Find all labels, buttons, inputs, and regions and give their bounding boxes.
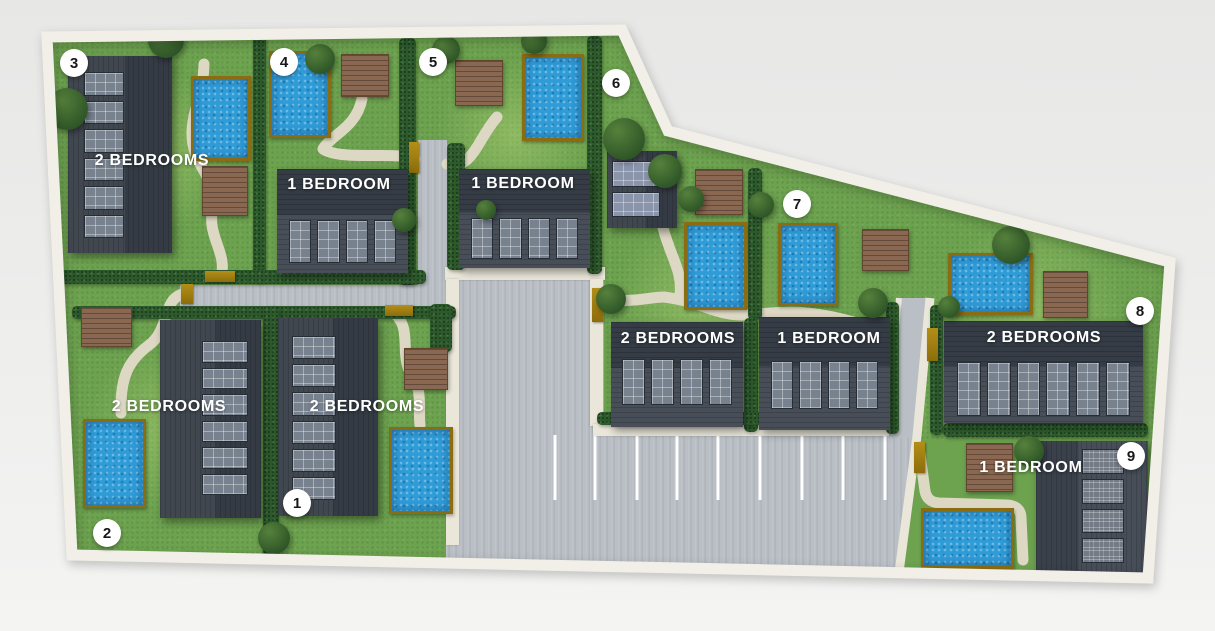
tree	[678, 186, 704, 212]
skylight	[84, 72, 124, 96]
skylight	[84, 215, 124, 239]
villa-1-building[interactable]	[278, 318, 378, 516]
tree	[148, 22, 184, 58]
tree	[392, 208, 416, 232]
villa-6-badge[interactable]: 6	[602, 69, 630, 97]
skylight	[528, 218, 550, 259]
villa-2-label: 2 BEDROOMS	[112, 398, 227, 416]
tree	[648, 154, 682, 188]
villa-3-badge[interactable]: 3	[60, 49, 88, 77]
skylight	[202, 341, 248, 363]
skylight	[346, 220, 368, 263]
skylight	[799, 361, 821, 409]
villa-5-label: 1 BEDROOM	[471, 175, 574, 193]
villa-5-skylights	[471, 218, 578, 259]
skylight	[957, 362, 981, 416]
gate	[205, 271, 235, 282]
skylight	[1082, 509, 1124, 534]
skylight	[292, 364, 336, 387]
skylight	[612, 192, 660, 218]
gate	[385, 305, 413, 316]
tree	[46, 88, 88, 130]
villa-9-badge[interactable]: 9	[1117, 442, 1145, 470]
villa-8-deck	[1043, 271, 1088, 318]
tree	[858, 288, 888, 318]
skylight	[202, 368, 248, 390]
villa-3-deck	[202, 166, 248, 216]
villa-5-deck	[455, 60, 503, 106]
villa-7-label: 1 BEDROOM	[777, 330, 880, 348]
skylight	[1106, 362, 1130, 416]
villa-6-pool	[684, 222, 747, 310]
tree	[521, 28, 547, 54]
skylight	[292, 449, 336, 472]
villa-4-badge[interactable]: 4	[270, 48, 298, 76]
villa-2-building[interactable]	[160, 320, 261, 518]
villa-6-label: 2 BEDROOMS	[621, 330, 736, 348]
skylight	[828, 361, 850, 409]
gate	[409, 142, 419, 173]
skylight	[556, 218, 578, 259]
skylight	[292, 421, 336, 444]
villa-5-pool	[522, 54, 584, 141]
villa-2-pool	[83, 419, 146, 508]
skylight	[1046, 362, 1070, 416]
hedge	[930, 305, 943, 435]
tree	[603, 118, 645, 160]
villa-4-skylights	[289, 220, 396, 263]
tree	[992, 226, 1030, 264]
skylight	[202, 447, 248, 469]
villa-8-skylights	[957, 362, 1130, 416]
villa-7-pool	[778, 223, 838, 306]
skylight	[1017, 362, 1041, 416]
skylight	[84, 101, 124, 125]
hedge	[253, 36, 266, 282]
tree	[938, 296, 960, 318]
villa-1-deck	[404, 348, 448, 390]
villa-5-badge[interactable]: 5	[419, 48, 447, 76]
skylight	[289, 220, 311, 263]
skylight	[709, 359, 732, 405]
villa-6-skylights	[622, 359, 732, 405]
tree	[258, 522, 290, 554]
skylight	[1082, 538, 1124, 563]
villa-8-badge[interactable]: 8	[1126, 297, 1154, 325]
villa-7-deck	[862, 229, 909, 271]
skylight	[1082, 479, 1124, 504]
hedge	[748, 168, 762, 320]
hedge	[430, 304, 452, 352]
villa-4-label: 1 BEDROOM	[287, 176, 390, 194]
skylight	[84, 129, 124, 153]
villa-8-pool	[948, 253, 1033, 315]
skylight	[292, 336, 336, 359]
villa-4-deck	[341, 54, 389, 97]
villa-3-label: 2 BEDROOMS	[95, 152, 210, 170]
villa-9-skylights	[1082, 449, 1124, 563]
villa-1-pool	[389, 427, 453, 514]
villa-7-skylights	[771, 361, 878, 409]
tree	[305, 44, 335, 74]
skylight	[84, 186, 124, 210]
tree	[748, 192, 774, 218]
walkway	[445, 267, 605, 280]
skylight	[771, 361, 793, 409]
gate	[927, 328, 938, 361]
skylight	[374, 220, 396, 263]
skylight	[680, 359, 703, 405]
parking-lines	[555, 435, 885, 500]
skylight	[987, 362, 1011, 416]
skylight	[471, 218, 493, 259]
skylight	[317, 220, 339, 263]
villa-9-label: 1 BEDROOM	[979, 459, 1082, 477]
hedge	[943, 423, 1148, 437]
villa-3-pool	[191, 76, 251, 161]
skylight	[622, 359, 645, 405]
villa-2-skylights	[202, 341, 248, 495]
gate	[914, 442, 925, 473]
villa-1-label: 2 BEDROOMS	[310, 398, 425, 416]
villa-9-pool	[921, 508, 1014, 569]
hedge	[263, 306, 279, 557]
skylight	[856, 361, 878, 409]
skylight	[1076, 362, 1100, 416]
skylight	[651, 359, 674, 405]
skylight	[202, 474, 248, 496]
gate	[181, 284, 193, 304]
tree	[596, 284, 626, 314]
villa-2-badge[interactable]: 2	[93, 519, 121, 547]
villa-1-skylights	[292, 336, 336, 500]
site-plan: 2 BEDROOMS 1 BEDROOM 1 BEDROOM 2 BEDROOM…	[0, 0, 1215, 631]
villa-1-badge[interactable]: 1	[283, 489, 311, 517]
villa-7-badge[interactable]: 7	[783, 190, 811, 218]
tree	[476, 200, 496, 220]
villa-2-deck	[81, 307, 132, 347]
skylight	[202, 421, 248, 443]
skylight	[499, 218, 521, 259]
villa-8-label: 2 BEDROOMS	[987, 329, 1102, 347]
